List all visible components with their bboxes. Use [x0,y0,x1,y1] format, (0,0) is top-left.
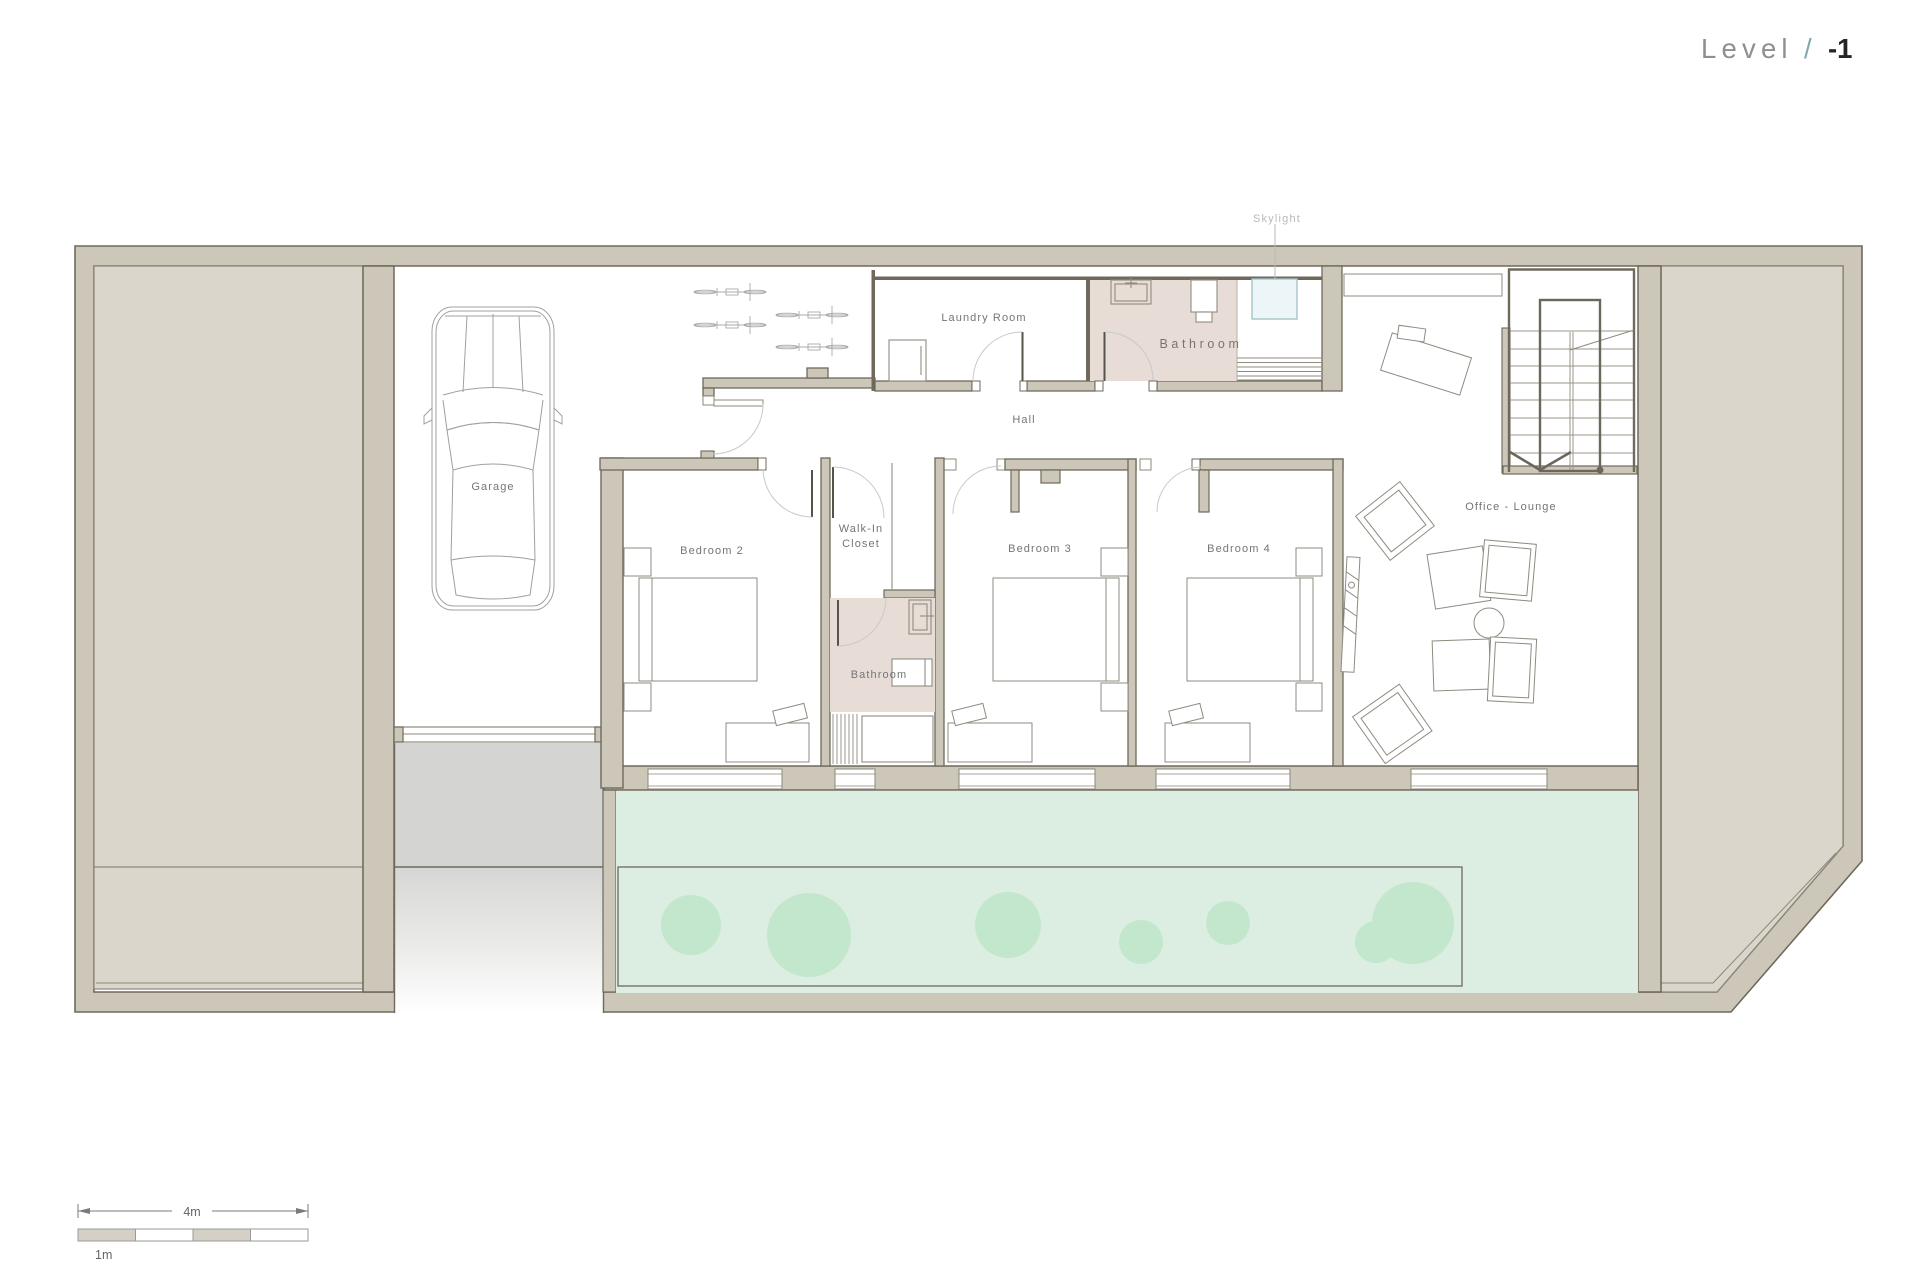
svg-text:Bedroom 3: Bedroom 3 [1008,543,1072,555]
svg-text:Hall: Hall [1012,414,1035,426]
svg-text:-1: -1 [1828,33,1852,64]
svg-text:Bedroom 4: Bedroom 4 [1207,543,1271,555]
svg-text:Bedroom 2: Bedroom 2 [680,545,744,557]
svg-text:1m: 1m [95,1248,112,1262]
svg-text:Garage: Garage [471,481,514,493]
svg-text:Office - Lounge: Office - Lounge [1465,501,1557,513]
svg-text:4m: 4m [183,1205,200,1219]
svg-text:Closet: Closet [842,538,880,550]
svg-text:Walk-In: Walk-In [839,523,884,535]
svg-text:Skylight: Skylight [1253,213,1301,225]
svg-text:Bathroom: Bathroom [1160,337,1243,351]
svg-text:Bathroom: Bathroom [851,669,908,681]
svg-text:/: / [1804,33,1812,64]
svg-text:Laundry Room: Laundry Room [941,312,1026,324]
svg-text:Level: Level [1701,33,1793,64]
